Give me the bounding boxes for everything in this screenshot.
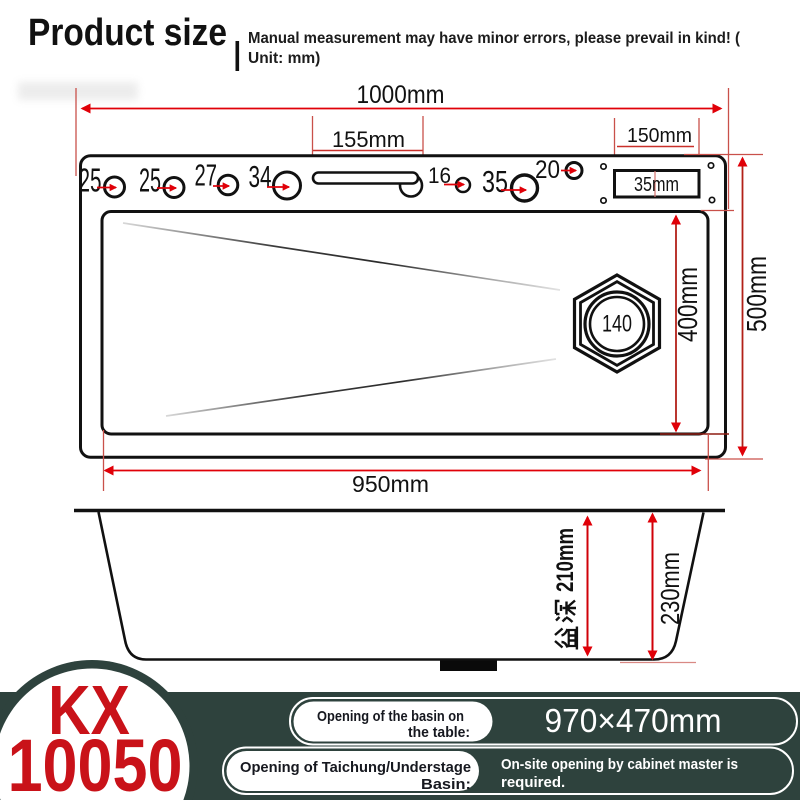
svg-text:970×470mm: 970×470mm [545, 702, 722, 739]
svg-text:the table:: the table: [408, 724, 470, 741]
svg-text:210mm: 210mm [552, 528, 579, 592]
svg-text:1000mm: 1000mm [357, 81, 445, 109]
svg-text:500mm: 500mm [741, 256, 772, 332]
svg-text:155mm: 155mm [332, 127, 405, 152]
svg-text:Product size: Product size [28, 12, 227, 54]
svg-text:25: 25 [79, 162, 102, 199]
svg-text:230mm: 230mm [655, 552, 685, 625]
svg-text:required.: required. [501, 774, 565, 791]
svg-text:Manual measurement may have mi: Manual measurement may have minor errors… [248, 30, 741, 47]
svg-text:Opening of the basin on: Opening of the basin on [317, 708, 464, 725]
svg-text:150mm: 150mm [627, 125, 692, 147]
svg-text:On-site opening by cabinet mas: On-site opening by cabinet master is [501, 756, 738, 773]
svg-text:20: 20 [535, 156, 560, 184]
svg-text:35: 35 [482, 164, 508, 199]
svg-text:10050: 10050 [8, 724, 183, 800]
svg-text:Basin:: Basin: [421, 776, 471, 793]
svg-text:25: 25 [139, 162, 161, 199]
svg-text:27: 27 [195, 158, 218, 193]
svg-text:34: 34 [249, 159, 272, 194]
svg-text:400mm: 400mm [672, 267, 703, 342]
svg-text:35mm: 35mm [634, 174, 679, 196]
svg-text:Unit: mm): Unit: mm) [248, 50, 320, 67]
svg-text:140: 140 [602, 311, 632, 338]
svg-text:Opening of Taichung/Understage: Opening of Taichung/Understage [240, 759, 471, 776]
svg-text:950mm: 950mm [352, 471, 429, 497]
